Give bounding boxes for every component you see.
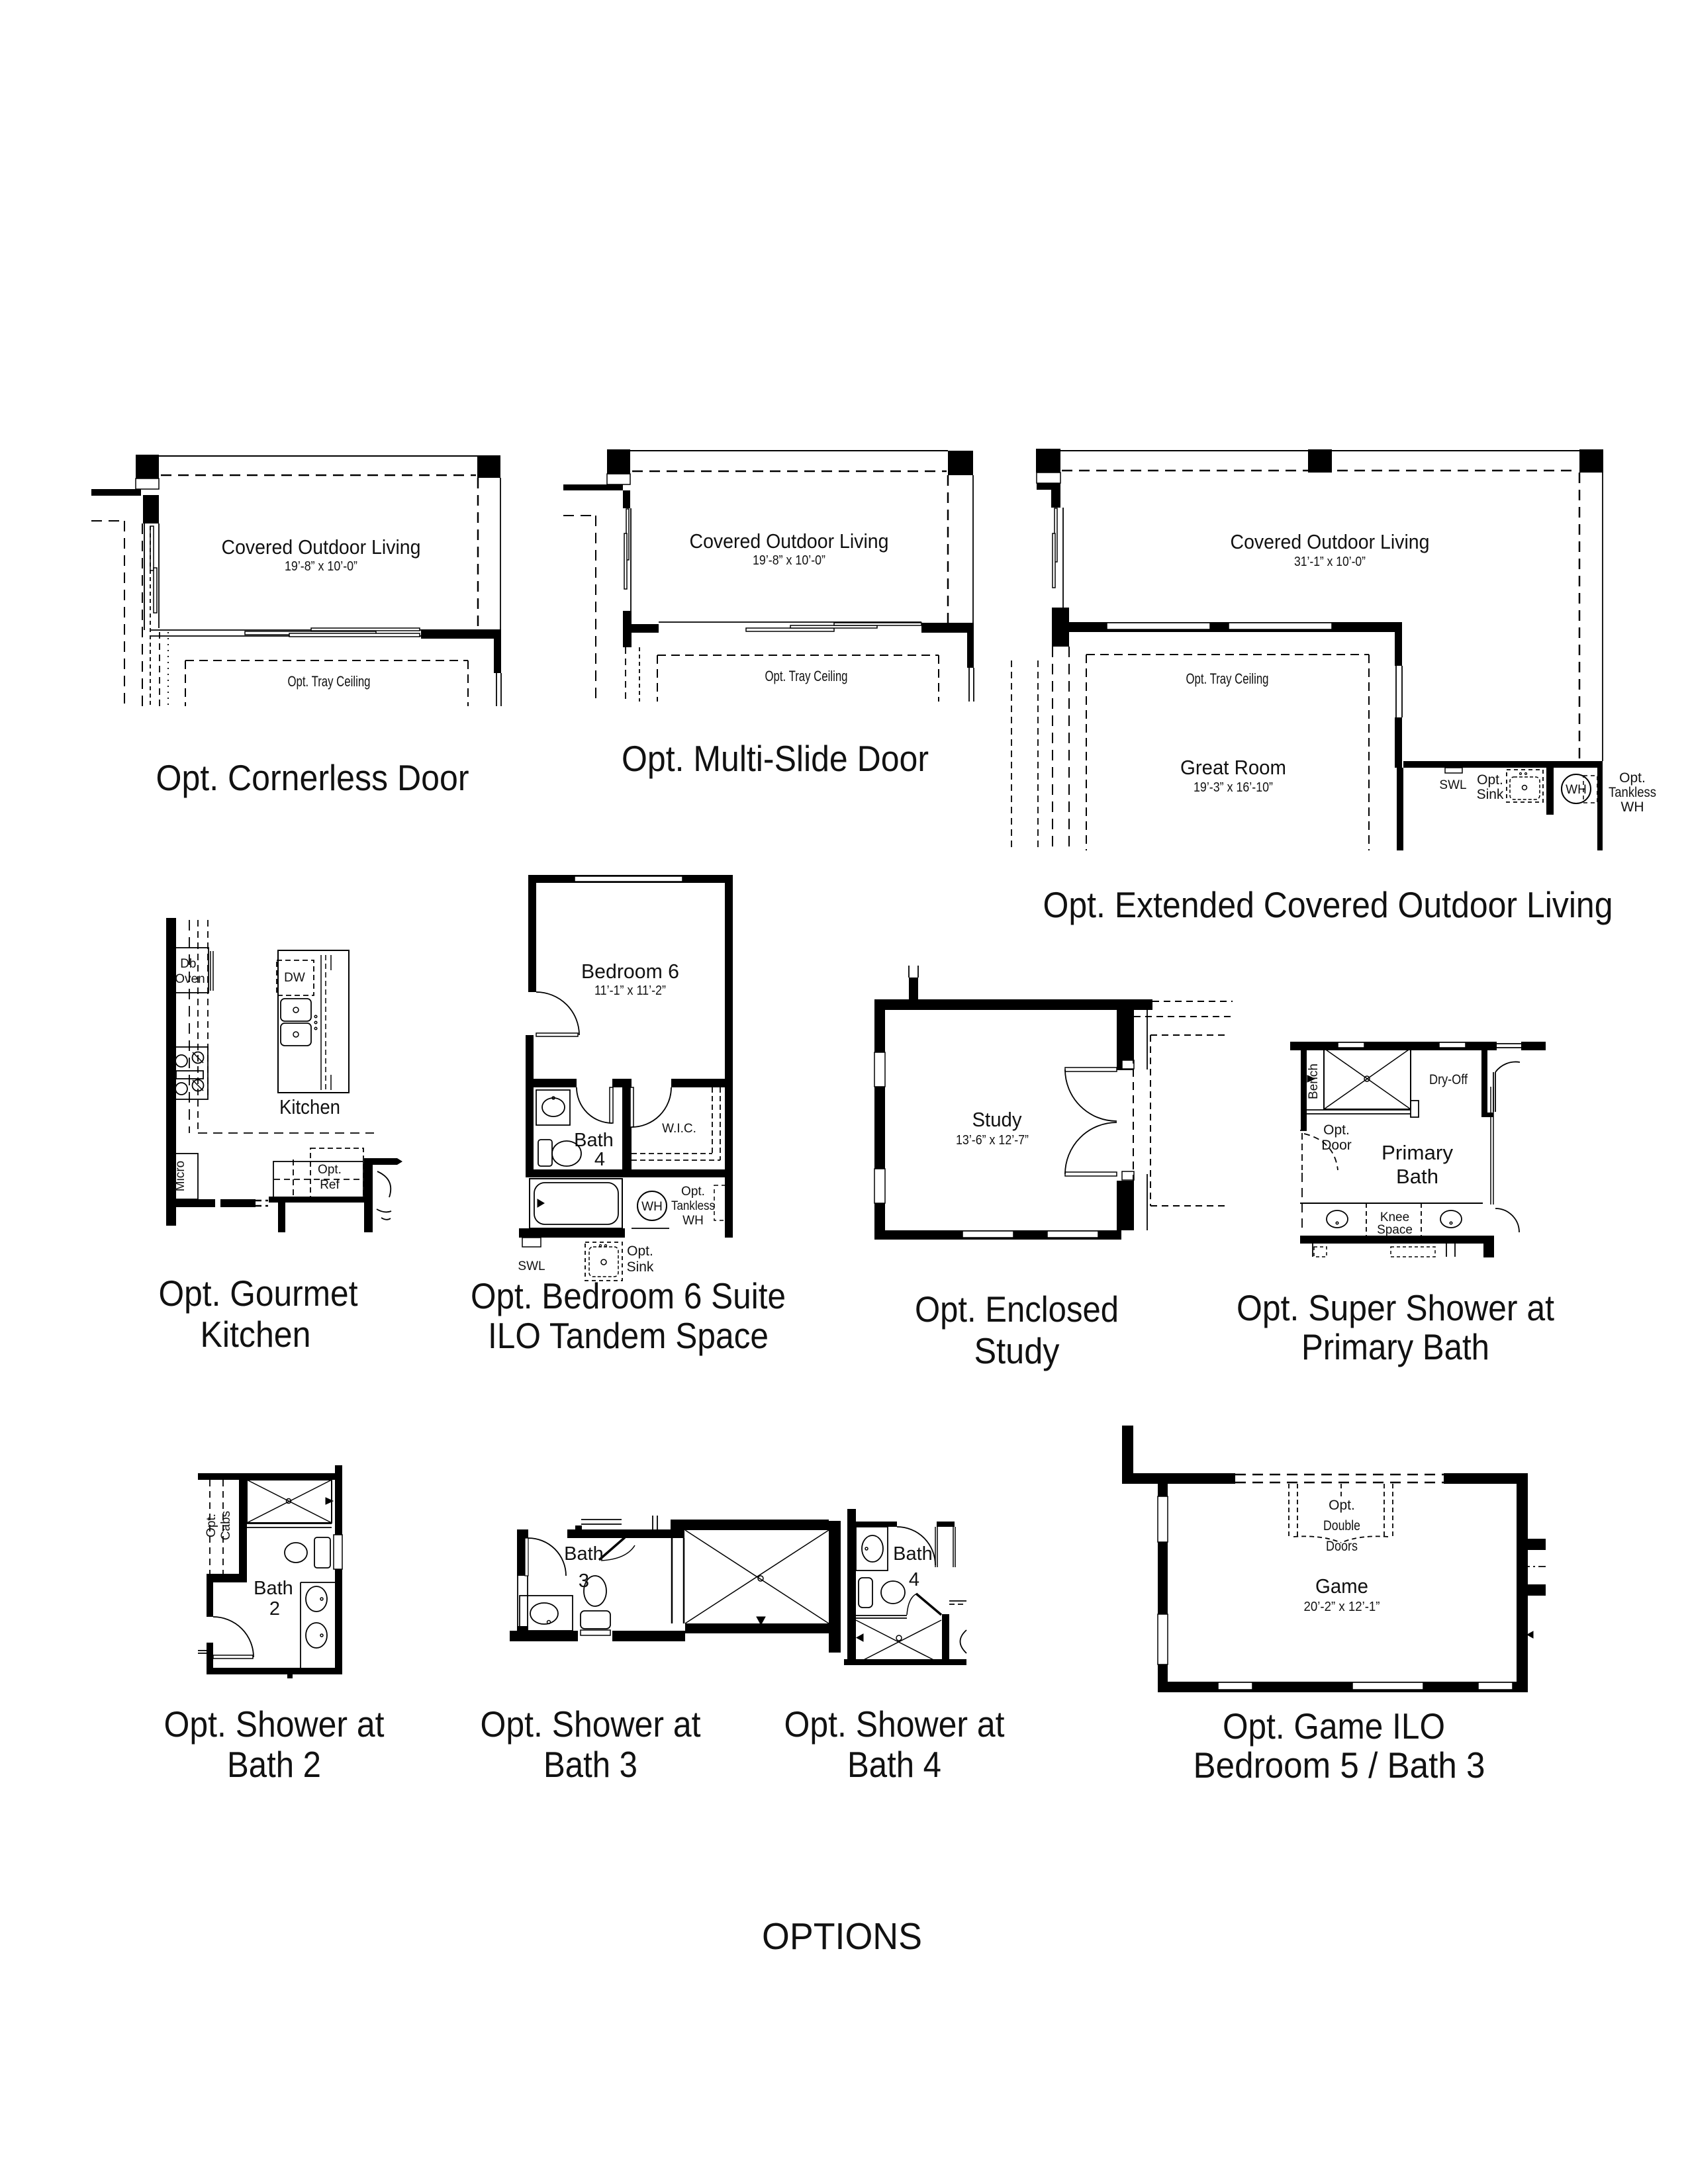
svg-text:19’-8” x 10’-0”: 19’-8” x 10’-0” — [753, 553, 825, 568]
svg-text:3: 3 — [579, 1570, 589, 1592]
svg-text:Tankless: Tankless — [1609, 785, 1656, 800]
svg-text:Opt.: Opt. — [205, 1514, 218, 1537]
svg-text:Bath 4: Bath 4 — [847, 1744, 941, 1785]
svg-text:Opt.: Opt. — [1619, 770, 1646, 786]
svg-text:Covered Outdoor Living: Covered Outdoor Living — [1231, 530, 1430, 553]
svg-text:Covered Outdoor Living: Covered Outdoor Living — [690, 529, 889, 553]
svg-text:Db.: Db. — [180, 957, 200, 971]
svg-text:WH: WH — [641, 1200, 663, 1214]
svg-text:13’-6” x 12’-7”: 13’-6” x 12’-7” — [956, 1133, 1029, 1148]
svg-text:DW: DW — [284, 971, 305, 985]
svg-text:Space: Space — [1377, 1223, 1413, 1237]
svg-text:19’-8” x 10’-0”: 19’-8” x 10’-0” — [285, 559, 357, 574]
svg-text:Opt. Tray Ceiling: Opt. Tray Ceiling — [288, 673, 371, 690]
svg-text:Opt. Tray Ceiling: Opt. Tray Ceiling — [1186, 670, 1269, 687]
svg-text:Primary: Primary — [1382, 1141, 1453, 1164]
svg-text:Oven: Oven — [175, 972, 205, 986]
svg-text:4: 4 — [909, 1569, 919, 1590]
svg-text:Tankless: Tankless — [671, 1199, 715, 1213]
svg-text:Opt.: Opt. — [681, 1185, 705, 1199]
svg-text:Bath: Bath — [254, 1578, 293, 1599]
svg-text:Opt. Gourmet: Opt. Gourmet — [159, 1273, 358, 1314]
svg-text:Opt.: Opt. — [318, 1163, 342, 1177]
svg-text:Bedroom 5 / Bath 3: Bedroom 5 / Bath 3 — [1194, 1745, 1485, 1786]
svg-text:OPTIONS: OPTIONS — [762, 1915, 922, 1958]
svg-text:Opt. Shower at: Opt. Shower at — [481, 1704, 701, 1745]
svg-text:Kitchen: Kitchen — [279, 1095, 340, 1118]
svg-text:Opt. Game ILO: Opt. Game ILO — [1223, 1706, 1445, 1747]
svg-text:Doors: Doors — [1326, 1539, 1358, 1554]
svg-text:Opt.: Opt. — [1329, 1498, 1355, 1513]
svg-text:Bath: Bath — [893, 1543, 933, 1565]
svg-text:19’-3” x 16’-10”: 19’-3” x 16’-10” — [1194, 780, 1273, 795]
svg-text:Bath 2: Bath 2 — [227, 1744, 321, 1785]
svg-text:Opt. Bedroom 6 Suite: Opt. Bedroom 6 Suite — [471, 1275, 786, 1316]
svg-text:Opt. Enclosed: Opt. Enclosed — [915, 1289, 1119, 1330]
svg-text:Opt. Tray Ceiling: Opt. Tray Ceiling — [765, 668, 848, 684]
svg-text:Micro: Micro — [173, 1161, 187, 1191]
svg-text:Opt.: Opt. — [1477, 772, 1503, 788]
svg-text:4: 4 — [594, 1149, 605, 1170]
svg-text:Bedroom 6: Bedroom 6 — [581, 960, 679, 983]
svg-text:Bench: Bench — [1307, 1064, 1321, 1099]
svg-text:Opt. Cornerless Door: Opt. Cornerless Door — [156, 757, 469, 798]
svg-text:Opt. Shower at: Opt. Shower at — [784, 1704, 1005, 1745]
svg-text:Sink: Sink — [627, 1259, 654, 1275]
svg-text:WH: WH — [1621, 799, 1644, 815]
svg-text:Opt. Shower at: Opt. Shower at — [164, 1704, 385, 1745]
svg-text:Opt.: Opt. — [627, 1244, 653, 1259]
svg-text:Bath: Bath — [1396, 1165, 1438, 1188]
svg-text:31’-1” x 10’-0”: 31’-1” x 10’-0” — [1294, 555, 1366, 569]
svg-text:WH: WH — [682, 1214, 704, 1228]
svg-text:20’-2” x 12’-1”: 20’-2” x 12’-1” — [1304, 1600, 1380, 1614]
svg-text:Bath 3: Bath 3 — [543, 1744, 637, 1785]
svg-text:Primary Bath: Primary Bath — [1301, 1326, 1489, 1367]
svg-text:Cabs: Cabs — [219, 1511, 233, 1540]
svg-text:Study: Study — [974, 1330, 1060, 1371]
svg-text:Covered Outdoor Living: Covered Outdoor Living — [222, 535, 421, 559]
svg-text:Opt.: Opt. — [1323, 1122, 1350, 1138]
svg-text:Dry-Off: Dry-Off — [1429, 1072, 1468, 1087]
svg-text:Great Room: Great Room — [1180, 756, 1286, 779]
svg-text:Game: Game — [1315, 1574, 1368, 1598]
svg-text:Study: Study — [972, 1108, 1022, 1131]
svg-text:Ref: Ref — [320, 1178, 340, 1192]
svg-text:SWL: SWL — [1439, 778, 1466, 792]
svg-text:W.I.C.: W.I.C. — [662, 1122, 696, 1136]
svg-text:Double: Double — [1323, 1518, 1360, 1533]
svg-text:Opt. Multi-Slide Door: Opt. Multi-Slide Door — [622, 738, 929, 779]
svg-text:Opt. Super Shower at: Opt. Super Shower at — [1237, 1287, 1554, 1328]
svg-text:Knee: Knee — [1380, 1210, 1409, 1224]
svg-text:ILO Tandem Space: ILO Tandem Space — [488, 1315, 769, 1356]
svg-text:Bath: Bath — [564, 1543, 604, 1565]
svg-text:Opt. Extended Covered Outdoor: Opt. Extended Covered Outdoor Living — [1043, 884, 1613, 925]
svg-text:Kitchen: Kitchen — [201, 1314, 311, 1355]
svg-text:2: 2 — [269, 1598, 280, 1619]
svg-text:11’-1” x 11’-2”: 11’-1” x 11’-2” — [594, 983, 666, 998]
svg-text:SWL: SWL — [518, 1259, 545, 1273]
svg-text:Sink: Sink — [1477, 787, 1504, 802]
